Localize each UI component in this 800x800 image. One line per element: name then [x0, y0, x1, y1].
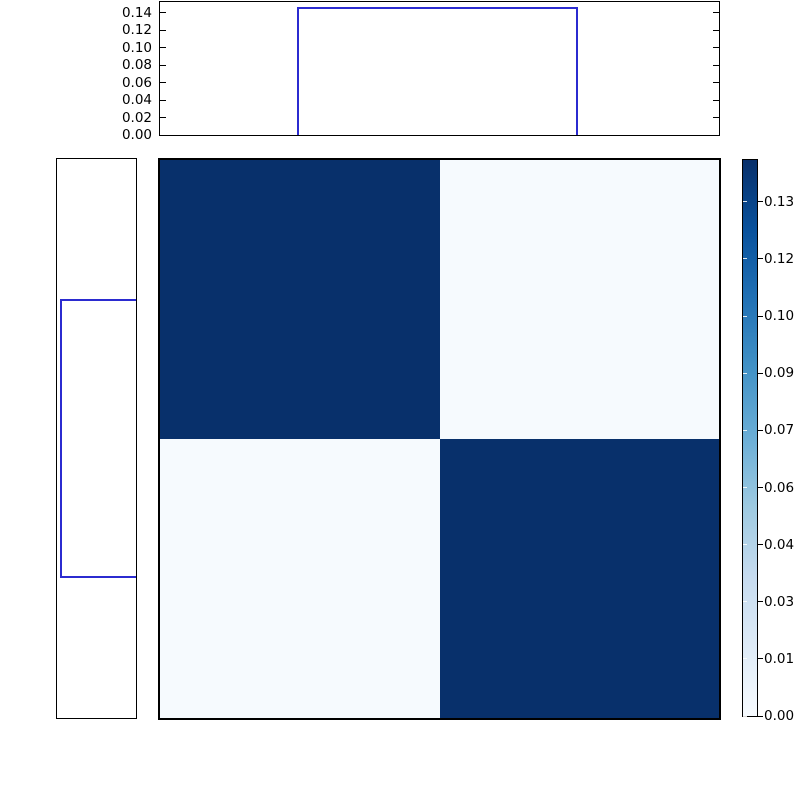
- y-tick-mark: [160, 65, 166, 66]
- y-tick-mark: [160, 82, 166, 83]
- colorbar-tick-label: 0.06: [764, 481, 794, 495]
- colorbar-tick-mark: [757, 544, 763, 545]
- y-tick-label: 0.00: [98, 128, 152, 142]
- y-tick-label: 0.14: [98, 6, 152, 20]
- colorbar-tick-mark: [757, 601, 763, 602]
- colorbar-tick-label: 0.10: [764, 309, 794, 323]
- colorbar-tick-mark-inner: [743, 487, 747, 488]
- y-tick-label: 0.04: [98, 93, 152, 107]
- y-tick-label: 0.08: [98, 58, 152, 72]
- colorbar-tick-mark: [757, 316, 763, 317]
- y-tick-label: 0.06: [98, 76, 152, 90]
- colorbar-tick-mark: [757, 487, 763, 488]
- top-histogram-step-line: [297, 7, 578, 135]
- colorbar: 0.000.010.030.040.060.070.090.100.120.13: [742, 159, 758, 717]
- left-histogram-step-line: [60, 299, 136, 578]
- y-tick-mark: [713, 47, 719, 48]
- y-tick-mark: [160, 30, 166, 31]
- left-marginal-histogram-panel: [56, 158, 137, 719]
- heatmap-cell-0-0: [160, 160, 440, 439]
- y-tick-mark: [713, 65, 719, 66]
- colorbar-tick-label: 0.04: [764, 538, 794, 552]
- colorbar-tick-mark-inner: [743, 201, 747, 202]
- colorbar-tick-mark-inner: [743, 716, 747, 717]
- colorbar-tick-mark-inner: [743, 601, 747, 602]
- colorbar-tick-mark: [757, 201, 763, 202]
- heatmap-cell-0-1: [440, 160, 720, 439]
- top-marginal-histogram-panel: 0.000.020.040.060.080.100.120.14: [159, 1, 720, 136]
- colorbar-tick-label: 0.09: [764, 366, 794, 380]
- y-tick-mark: [713, 100, 719, 101]
- colorbar-tick-mark-inner: [743, 316, 747, 317]
- colorbar-tick-mark-inner: [743, 430, 747, 431]
- y-tick-label: 0.12: [98, 23, 152, 37]
- y-tick-mark: [160, 135, 166, 136]
- colorbar-tick-mark: [757, 258, 763, 259]
- colorbar-tick-label: 0.00: [764, 709, 794, 723]
- y-tick-mark: [160, 117, 166, 118]
- y-tick-label: 0.02: [98, 111, 152, 125]
- y-tick-mark: [713, 117, 719, 118]
- y-tick-mark: [160, 47, 166, 48]
- colorbar-tick-mark-inner: [743, 373, 747, 374]
- y-tick-label: 0.10: [98, 41, 152, 55]
- y-tick-mark: [713, 82, 719, 83]
- colorbar-tick-label: 0.07: [764, 423, 794, 437]
- colorbar-tick-label: 0.01: [764, 652, 794, 666]
- heatmap-cell-1-0: [160, 439, 440, 718]
- colorbar-tick-label: 0.12: [764, 252, 794, 266]
- heatmap: [158, 158, 721, 720]
- y-tick-mark: [160, 100, 166, 101]
- colorbar-tick-label: 0.13: [764, 195, 794, 209]
- y-tick-mark: [713, 12, 719, 13]
- figure-canvas: 0.000.020.040.060.080.100.120.14 0.000.0…: [0, 0, 800, 800]
- colorbar-tick-mark: [757, 716, 763, 717]
- heatmap-cell-1-1: [440, 439, 720, 718]
- y-tick-mark: [160, 12, 166, 13]
- colorbar-tick-mark: [757, 658, 763, 659]
- colorbar-tick-label: 0.03: [764, 595, 794, 609]
- colorbar-tick-mark: [757, 373, 763, 374]
- colorbar-tick-mark-inner: [743, 544, 747, 545]
- y-tick-mark: [713, 30, 719, 31]
- colorbar-tick-mark-inner: [743, 258, 747, 259]
- colorbar-tick-mark: [757, 430, 763, 431]
- colorbar-tick-mark-inner: [743, 658, 747, 659]
- y-tick-mark: [713, 135, 719, 136]
